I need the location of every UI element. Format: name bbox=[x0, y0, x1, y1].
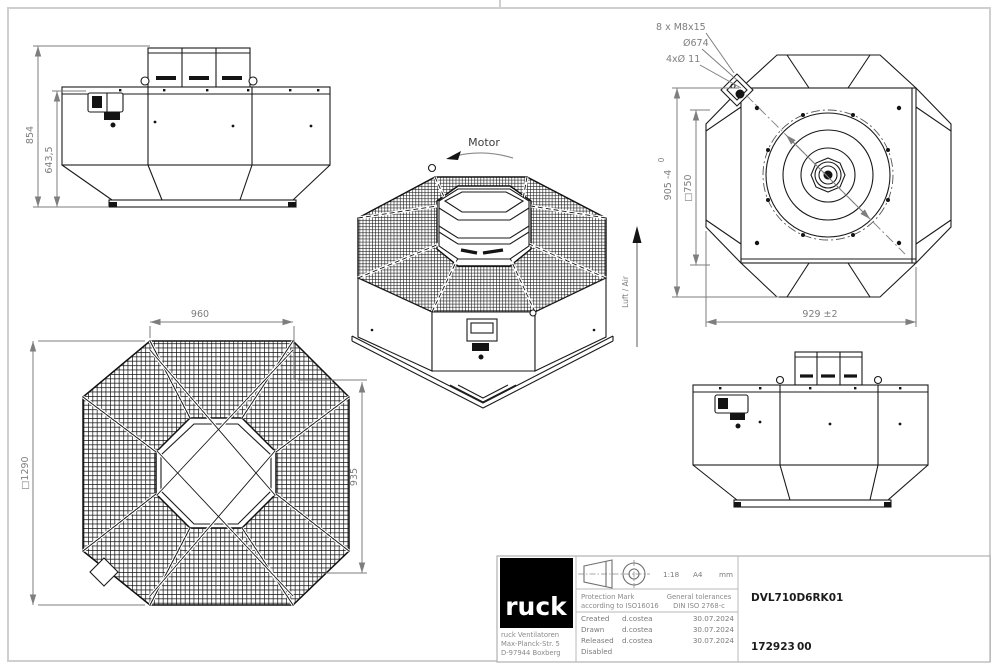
row-name: d.costea bbox=[622, 625, 653, 634]
row-label: Drawn bbox=[581, 625, 604, 634]
dim-643-5: 643,5 bbox=[44, 146, 55, 173]
paper-size: A4 bbox=[693, 570, 703, 579]
row-label: Created bbox=[581, 614, 609, 623]
company-address: ruck Ventilatoren Max-Planck-Str. 5 D-97… bbox=[501, 631, 561, 657]
tolerances-line-2: DIN ISO 2768-c bbox=[673, 602, 725, 610]
front-view: 854 643,5 bbox=[25, 46, 330, 207]
dim-929: 929 ±2 bbox=[802, 309, 837, 320]
address-line-1: ruck Ventilatoren bbox=[501, 631, 559, 639]
address-line-2: Max-Planck-Str. 5 bbox=[501, 640, 560, 648]
drawing-canvas: 854 643,5 Motor bbox=[0, 0, 998, 668]
lifting-eye-icon bbox=[777, 377, 784, 384]
top-view: 960 935 □1290 bbox=[20, 309, 367, 605]
dim-960: 960 bbox=[191, 309, 209, 320]
scale-value: 1:18 bbox=[663, 570, 680, 579]
motor-label: Motor bbox=[468, 136, 500, 149]
row-label: Disabled bbox=[581, 647, 612, 656]
airflow-arrow bbox=[633, 226, 642, 347]
dim-750: □750 bbox=[683, 174, 694, 201]
side-view bbox=[693, 352, 928, 507]
row-date: 30.07.2024 bbox=[693, 636, 735, 645]
row-name: d.costea bbox=[622, 614, 653, 623]
dim-905-tol: 0 bbox=[657, 157, 666, 162]
ruck-logo: ruck bbox=[500, 558, 573, 628]
drawing-revision: 00 bbox=[797, 641, 812, 653]
units: mm bbox=[719, 570, 733, 579]
drawing-number: 172923 bbox=[751, 641, 795, 653]
dim-1290: □1290 bbox=[20, 456, 31, 489]
lifting-eye-icon bbox=[530, 310, 536, 316]
motor-rotation-arrow bbox=[446, 151, 513, 160]
lifting-eye-icon bbox=[141, 77, 149, 85]
airflow-label: Luft / Air bbox=[621, 275, 630, 308]
hole-notes: 8 x M8x15 Ø674 4xØ 11 bbox=[656, 22, 741, 88]
part-number: DVL710D6RK01 bbox=[751, 592, 843, 604]
note-holes: 4xØ 11 bbox=[666, 54, 700, 65]
row-name: d.costea bbox=[622, 636, 653, 645]
lifting-eye-icon bbox=[249, 77, 257, 85]
technical-drawing-page: 854 643,5 Motor bbox=[0, 0, 998, 668]
row-date: 30.07.2024 bbox=[693, 625, 735, 634]
dim-905: 905 -4 bbox=[663, 170, 674, 201]
iso-view: Motor Luft / Air bbox=[352, 136, 642, 408]
dim-935: 935 bbox=[349, 468, 360, 486]
iso-chimney bbox=[439, 189, 529, 259]
row-date: 30.07.2024 bbox=[693, 614, 735, 623]
note-bolt-circle: Ø674 bbox=[683, 38, 709, 49]
protection-mark-line-1: Protection Mark bbox=[581, 593, 634, 601]
top-mesh-guard bbox=[83, 341, 349, 605]
protection-mark-line-2: according to ISO16016 bbox=[581, 602, 659, 610]
dim-854: 854 bbox=[25, 126, 36, 144]
address-line-3: D-97944 Boxberg bbox=[501, 649, 561, 657]
lifting-eye-icon bbox=[875, 377, 882, 384]
note-bolts: 8 x M8x15 bbox=[656, 22, 706, 33]
tolerances-line-1: General tolerances bbox=[667, 593, 732, 601]
row-label: Released bbox=[581, 636, 614, 645]
logo-text: ruck bbox=[505, 592, 568, 621]
general-tolerances: General tolerances DIN ISO 2768-c bbox=[667, 593, 732, 610]
title-block: ruck ruck Ventilatoren Max-Planck-Str. 5… bbox=[497, 556, 990, 662]
lifting-eye-icon bbox=[429, 165, 436, 172]
bottom-view: 8 x M8x15 Ø674 4xØ 11 905 -4 0 □750 929 … bbox=[656, 22, 951, 327]
